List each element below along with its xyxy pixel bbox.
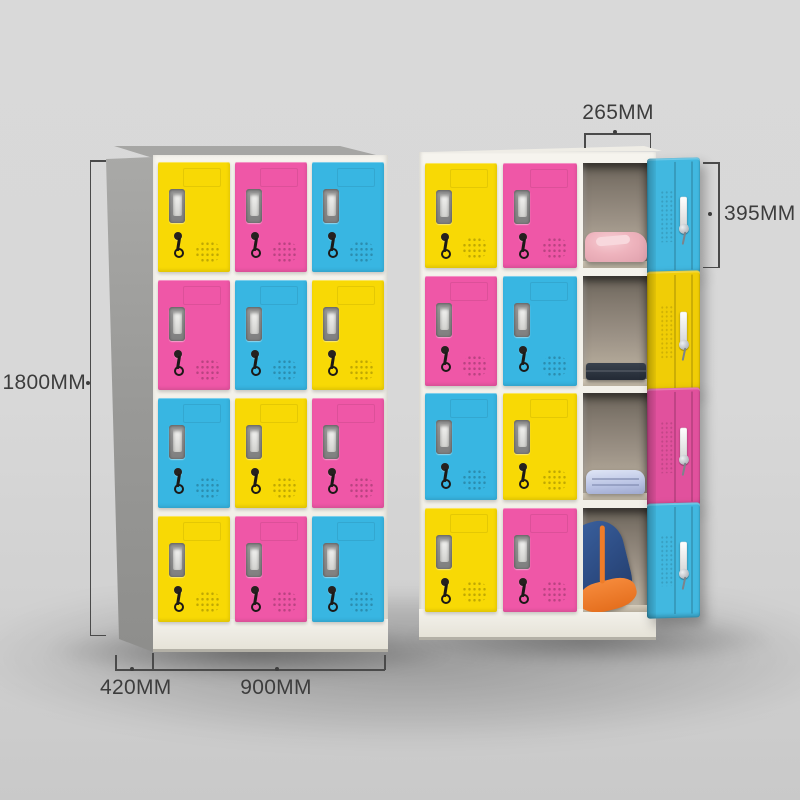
dimension-depth-label: 420MM	[100, 676, 166, 700]
door-label-slot	[260, 404, 298, 423]
door-handle	[246, 425, 262, 459]
door-keyhole-with-key	[328, 232, 336, 240]
open-compartment	[583, 508, 650, 612]
door-label-slot	[260, 522, 298, 541]
dimension-bottom-tick	[115, 655, 117, 670]
door-vent-holes	[272, 591, 298, 613]
compartment-item-pink-clothes	[585, 232, 647, 262]
door-vent-holes	[195, 477, 221, 499]
dimension-height-label: 1800MM	[2, 371, 86, 395]
door-vent-holes	[349, 477, 375, 499]
compartment-item-blue-orange-backpack	[583, 516, 638, 612]
locker-door	[503, 508, 577, 612]
door-handle	[514, 420, 530, 454]
open-door-vent-holes	[660, 421, 673, 473]
door-label-slot	[183, 522, 221, 541]
door-handle	[514, 190, 530, 224]
dimension-height-tick	[90, 160, 106, 162]
left-locker-side-panel	[106, 155, 153, 652]
locker-door	[235, 516, 307, 622]
door-handle	[246, 543, 262, 577]
open-door-edge	[647, 503, 656, 618]
locker-door	[425, 163, 497, 268]
door-vent-holes	[462, 237, 488, 259]
compartment-floor	[583, 261, 650, 268]
door-label-slot	[450, 169, 488, 188]
open-door-crease	[674, 275, 676, 388]
door-keyhole-with-key	[519, 346, 527, 354]
door-label-slot	[530, 169, 568, 188]
door-keyhole-with-key	[441, 233, 449, 241]
locker-door	[312, 398, 384, 508]
open-door-edge	[647, 271, 656, 392]
door-label-slot	[337, 404, 375, 423]
open-door-crease	[691, 161, 693, 269]
open-door-crease	[691, 391, 693, 501]
compartment-floor	[583, 493, 650, 500]
dimension-width-label: 900MM	[238, 676, 314, 700]
door-handle	[323, 189, 339, 223]
door-handle	[436, 535, 452, 569]
door-keyhole-with-key	[174, 586, 182, 594]
open-locker-door	[647, 270, 700, 392]
door-handle	[323, 543, 339, 577]
door-vent-holes	[272, 359, 298, 381]
right-locker-base	[419, 609, 656, 640]
open-door-edge	[647, 388, 656, 506]
open-door-crease	[691, 274, 693, 387]
open-door-vent-holes	[660, 535, 673, 586]
dimension-door-height-tick	[703, 267, 719, 269]
left-locker-base	[153, 619, 388, 652]
dimension-depth-dot	[130, 667, 134, 671]
door-vent-holes	[542, 237, 568, 259]
door-vent-holes	[462, 581, 488, 603]
locker-door	[503, 393, 577, 500]
locker-door	[503, 163, 577, 268]
door-handle	[323, 425, 339, 459]
dimension-bottom-tick	[152, 653, 154, 670]
dimension-door-height-label: 395MM	[724, 202, 800, 226]
locker-door	[425, 276, 497, 386]
compartment-item-lavender-clothes	[586, 470, 645, 494]
open-door-crease	[674, 162, 676, 270]
dimension-door-height-line	[718, 162, 720, 268]
door-keyhole-with-key	[441, 578, 449, 586]
door-handle	[169, 189, 185, 223]
open-door-lock-with-keys	[679, 455, 689, 465]
open-door-lock-with-keys	[679, 340, 689, 350]
dimension-door-width-tick	[584, 133, 586, 148]
door-keyhole-with-key	[251, 586, 259, 594]
door-label-slot	[337, 286, 375, 305]
open-locker-door	[647, 387, 700, 506]
door-handle	[169, 307, 185, 341]
door-keyhole-with-key	[251, 350, 259, 358]
door-label-slot	[337, 522, 375, 541]
door-handle	[514, 303, 530, 337]
dimension-bottom-line	[115, 669, 385, 671]
locker-door	[158, 280, 230, 390]
dimension-height-tick	[90, 635, 106, 637]
dimension-door-width-label: 265MM	[572, 101, 664, 125]
door-keyhole-with-key	[251, 468, 259, 476]
locker-door	[503, 276, 577, 386]
door-keyhole-with-key	[441, 346, 449, 354]
locker-door	[158, 162, 230, 272]
door-keyhole-with-key	[519, 233, 527, 241]
dimension-height-dot	[86, 381, 90, 385]
door-label-slot	[450, 399, 488, 418]
door-vent-holes	[542, 581, 568, 603]
door-vent-holes	[462, 355, 488, 377]
open-door-lock-with-keys	[679, 568, 689, 578]
door-keyhole-with-key	[328, 586, 336, 594]
door-keyhole-with-key	[174, 232, 182, 240]
open-door-crease	[674, 392, 676, 502]
locker-door	[235, 398, 307, 508]
door-keyhole-with-key	[328, 468, 336, 476]
locker-door	[158, 398, 230, 508]
door-vent-holes	[272, 241, 298, 263]
open-locker-door	[647, 502, 700, 618]
right-locker-body	[419, 152, 656, 640]
open-door-vent-holes	[660, 190, 673, 241]
door-handle	[436, 303, 452, 337]
door-handle	[246, 189, 262, 223]
open-door-edge	[647, 158, 656, 274]
door-vent-holes	[462, 469, 488, 491]
locker-door	[235, 280, 307, 390]
door-vent-holes	[349, 591, 375, 613]
door-label-slot	[530, 282, 568, 301]
dimension-door-width-tick	[650, 133, 652, 148]
locker-door	[425, 508, 497, 612]
door-keyhole-with-key	[251, 232, 259, 240]
door-label-slot	[183, 404, 221, 423]
open-door-vent-holes	[660, 305, 673, 359]
compartment-item-navy-clothes	[586, 363, 646, 380]
door-label-slot	[530, 399, 568, 418]
door-vent-holes	[349, 241, 375, 263]
door-keyhole-with-key	[328, 350, 336, 358]
locker-door	[312, 162, 384, 272]
dimension-door-height-dot	[708, 212, 712, 216]
dimension-width-dot	[275, 667, 279, 671]
door-vent-holes	[542, 469, 568, 491]
open-locker-door	[647, 157, 700, 274]
door-keyhole-with-key	[174, 350, 182, 358]
locker-door	[312, 516, 384, 622]
open-door-lock-with-keys	[679, 224, 689, 234]
door-handle	[514, 535, 530, 569]
open-door-crease	[691, 506, 693, 613]
door-handle	[169, 543, 185, 577]
door-label-slot	[260, 286, 298, 305]
door-handle	[323, 307, 339, 341]
door-label-slot	[337, 168, 375, 187]
door-vent-holes	[542, 355, 568, 377]
locker-door	[158, 516, 230, 622]
dimension-door-width-line	[584, 133, 651, 135]
door-label-slot	[183, 286, 221, 305]
left-locker-body	[153, 155, 388, 652]
door-label-slot	[450, 282, 488, 301]
compartment-floor	[583, 379, 650, 386]
dimension-door-height-tick	[703, 162, 719, 164]
open-compartment	[583, 163, 650, 268]
door-handle	[169, 425, 185, 459]
door-vent-holes	[349, 359, 375, 381]
door-vent-holes	[272, 477, 298, 499]
door-keyhole-with-key	[441, 463, 449, 471]
locker-door	[235, 162, 307, 272]
door-keyhole-with-key	[519, 463, 527, 471]
door-handle	[436, 420, 452, 454]
open-compartment	[583, 393, 650, 500]
dimension-door-width-dot	[613, 130, 617, 134]
locker-door	[425, 393, 497, 500]
door-keyhole-with-key	[519, 578, 527, 586]
door-handle	[436, 190, 452, 224]
locker-door	[312, 280, 384, 390]
door-label-slot	[450, 514, 488, 533]
door-label-slot	[260, 168, 298, 187]
door-handle	[246, 307, 262, 341]
door-label-slot	[183, 168, 221, 187]
dimension-bottom-tick	[384, 655, 386, 670]
door-vent-holes	[195, 591, 221, 613]
door-label-slot	[530, 514, 568, 533]
open-door-crease	[674, 507, 676, 614]
door-vent-holes	[195, 241, 221, 263]
door-keyhole-with-key	[174, 468, 182, 476]
dimension-height-line	[90, 160, 92, 636]
open-compartment	[583, 276, 650, 386]
door-vent-holes	[195, 359, 221, 381]
product-photo-scene: 1800MM 420MM 900MM 265MM 395MM	[0, 0, 800, 800]
